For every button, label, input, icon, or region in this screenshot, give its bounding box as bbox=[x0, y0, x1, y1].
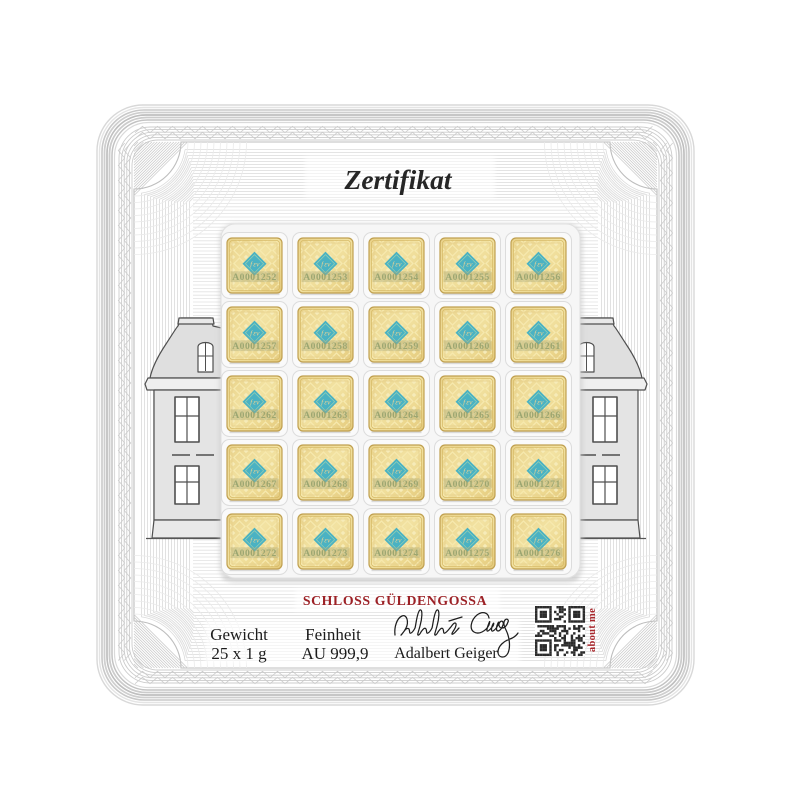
svg-text:A0001270: A0001270 bbox=[445, 479, 490, 490]
svg-text:A0001262: A0001262 bbox=[232, 410, 277, 421]
svg-text:A0001253: A0001253 bbox=[303, 272, 348, 283]
svg-text:Zertifikat: Zertifikat bbox=[344, 164, 453, 195]
svg-text:ƒɛν: ƒɛν bbox=[533, 260, 544, 269]
svg-text:A0001269: A0001269 bbox=[374, 479, 419, 490]
svg-text:ƒɛν: ƒɛν bbox=[249, 398, 260, 407]
svg-text:A0001265: A0001265 bbox=[445, 410, 490, 421]
svg-text:A0001272: A0001272 bbox=[232, 548, 277, 559]
svg-text:A0001260: A0001260 bbox=[445, 341, 490, 352]
svg-text:ƒɛν: ƒɛν bbox=[249, 260, 260, 269]
svg-text:A0001252: A0001252 bbox=[232, 272, 277, 283]
svg-text:ƒɛν: ƒɛν bbox=[391, 329, 402, 338]
svg-text:ƒɛν: ƒɛν bbox=[249, 536, 260, 545]
svg-text:A0001266: A0001266 bbox=[516, 410, 561, 421]
svg-text:Adalbert Geiger: Adalbert Geiger bbox=[394, 645, 498, 662]
svg-text:Gewicht: Gewicht bbox=[210, 625, 268, 644]
svg-text:Feinheit: Feinheit bbox=[305, 625, 361, 644]
svg-text:ƒɛν: ƒɛν bbox=[533, 398, 544, 407]
svg-text:A0001263: A0001263 bbox=[303, 410, 348, 421]
svg-text:ƒɛν: ƒɛν bbox=[249, 467, 260, 476]
svg-text:A0001267: A0001267 bbox=[232, 479, 277, 490]
svg-text:ƒɛν: ƒɛν bbox=[462, 329, 473, 338]
svg-text:A0001255: A0001255 bbox=[445, 272, 490, 283]
svg-text:ƒɛν: ƒɛν bbox=[533, 467, 544, 476]
svg-text:ƒɛν: ƒɛν bbox=[320, 467, 331, 476]
svg-text:ƒɛν: ƒɛν bbox=[320, 329, 331, 338]
svg-text:A0001275: A0001275 bbox=[445, 548, 490, 559]
svg-text:A0001274: A0001274 bbox=[374, 548, 419, 559]
svg-text:ƒɛν: ƒɛν bbox=[320, 536, 331, 545]
svg-text:A0001256: A0001256 bbox=[516, 272, 561, 283]
svg-text:ƒɛν: ƒɛν bbox=[462, 467, 473, 476]
svg-text:ƒɛν: ƒɛν bbox=[462, 398, 473, 407]
svg-text:ƒɛν: ƒɛν bbox=[391, 467, 402, 476]
svg-text:about me: about me bbox=[587, 608, 598, 652]
svg-text:ƒɛν: ƒɛν bbox=[391, 260, 402, 269]
svg-text:A0001261: A0001261 bbox=[516, 341, 561, 352]
svg-text:SCHLOSS GÜLDENGOSSA: SCHLOSS GÜLDENGOSSA bbox=[303, 592, 487, 608]
svg-text:A0001259: A0001259 bbox=[374, 341, 419, 352]
svg-text:A0001254: A0001254 bbox=[374, 272, 419, 283]
svg-text:ƒɛν: ƒɛν bbox=[462, 536, 473, 545]
svg-text:25 x 1 g: 25 x 1 g bbox=[211, 644, 267, 663]
svg-text:ƒɛν: ƒɛν bbox=[533, 329, 544, 338]
svg-text:ƒɛν: ƒɛν bbox=[533, 536, 544, 545]
svg-text:ƒɛν: ƒɛν bbox=[462, 260, 473, 269]
svg-text:A0001258: A0001258 bbox=[303, 341, 348, 352]
svg-text:ƒɛν: ƒɛν bbox=[320, 260, 331, 269]
svg-text:A0001257: A0001257 bbox=[232, 341, 277, 352]
svg-text:A0001273: A0001273 bbox=[303, 548, 348, 559]
svg-text:ƒɛν: ƒɛν bbox=[391, 398, 402, 407]
svg-text:A0001264: A0001264 bbox=[374, 410, 419, 421]
svg-text:A0001268: A0001268 bbox=[303, 479, 348, 490]
svg-text:AU 999,9: AU 999,9 bbox=[301, 644, 368, 663]
svg-text:ƒɛν: ƒɛν bbox=[249, 329, 260, 338]
svg-text:A0001276: A0001276 bbox=[516, 548, 561, 559]
svg-text:ƒɛν: ƒɛν bbox=[320, 398, 331, 407]
svg-text:A0001271: A0001271 bbox=[516, 479, 561, 490]
svg-text:ƒɛν: ƒɛν bbox=[391, 536, 402, 545]
